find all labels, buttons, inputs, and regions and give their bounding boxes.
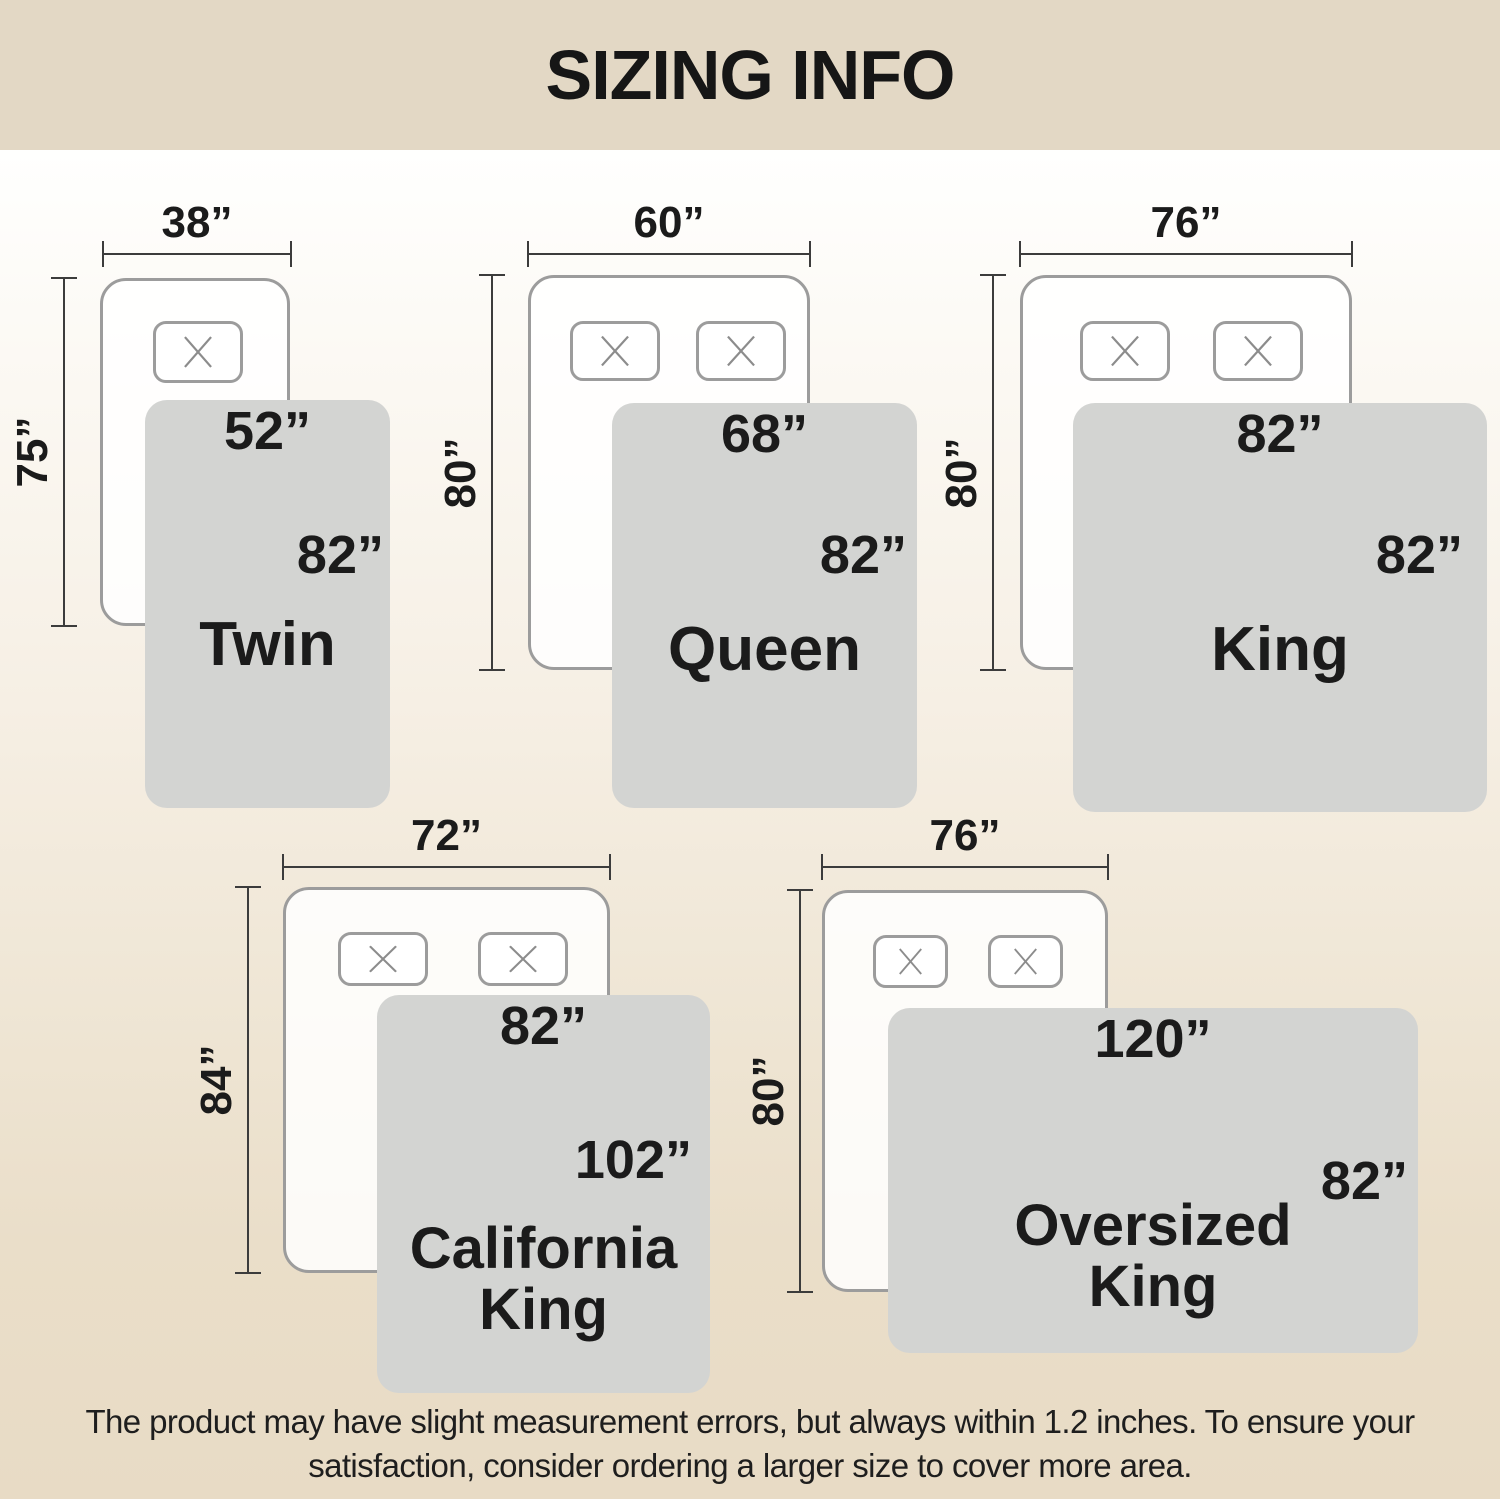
pillow-x-icon xyxy=(876,938,945,985)
bed-width-dimension: 76” xyxy=(822,814,1108,868)
bed-width-label: 76” xyxy=(930,814,1001,858)
horizontal-dimension-line xyxy=(822,866,1108,868)
bed-length-dimension: 80” xyxy=(799,890,801,1292)
sizing-infographic: SIZING INFO 38” 75” 52” 82” Twin 60” xyxy=(0,0,1500,1499)
vertical-dimension-line xyxy=(799,890,801,1292)
bed-length-label: 80” xyxy=(747,1056,791,1127)
blanket-width-label: 120” xyxy=(888,1012,1418,1066)
disclaimer-line-1: The product may have slight measurement … xyxy=(0,1400,1500,1444)
size-diagram-oversized-king: 76” 80” 120” 82” Oversized King xyxy=(0,0,1500,1499)
pillow-x-icon xyxy=(991,938,1060,985)
size-name-label: Oversized King xyxy=(888,1196,1418,1318)
blanket-shape: 120” 82” Oversized King xyxy=(888,1008,1418,1353)
disclaimer: The product may have slight measurement … xyxy=(0,1400,1500,1487)
disclaimer-line-2: satisfaction, consider ordering a larger… xyxy=(0,1444,1500,1488)
pillow-icon xyxy=(873,935,948,988)
pillow-icon xyxy=(988,935,1063,988)
